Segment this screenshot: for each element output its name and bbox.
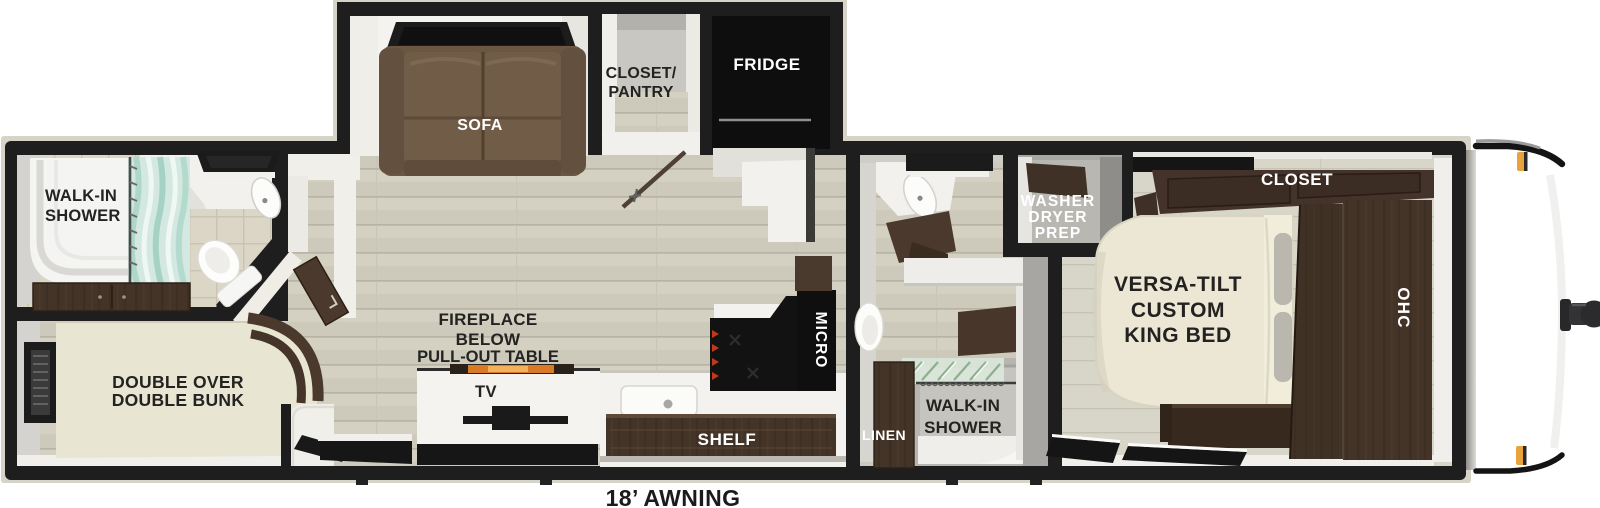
svg-text:FIREPLACE: FIREPLACE xyxy=(438,310,537,329)
svg-text:FRIDGE: FRIDGE xyxy=(733,55,800,74)
svg-text:DRYER: DRYER xyxy=(1028,209,1087,226)
svg-text:DOUBLE BUNK: DOUBLE BUNK xyxy=(112,390,245,410)
svg-text:BELOW: BELOW xyxy=(456,330,521,349)
svg-text:DOUBLE OVER: DOUBLE OVER xyxy=(112,372,244,392)
svg-text:WALK-IN: WALK-IN xyxy=(926,396,1000,415)
svg-text:SHELF: SHELF xyxy=(698,430,757,449)
svg-text:VERSA-TILT: VERSA-TILT xyxy=(1114,273,1242,296)
svg-text:OHC: OHC xyxy=(1394,287,1413,328)
svg-text:CLOSET/: CLOSET/ xyxy=(606,65,677,82)
svg-text:SHOWER: SHOWER xyxy=(45,207,120,225)
svg-text:WASHER: WASHER xyxy=(1021,193,1096,210)
svg-text:KING BED: KING BED xyxy=(1124,324,1231,347)
svg-text:PREP: PREP xyxy=(1035,225,1082,242)
svg-text:TV: TV xyxy=(475,383,497,401)
svg-text:CUSTOM: CUSTOM xyxy=(1131,299,1225,322)
svg-text:SOFA: SOFA xyxy=(457,117,503,134)
svg-text:18’ AWNING: 18’ AWNING xyxy=(606,485,741,508)
svg-text:CLOSET: CLOSET xyxy=(1261,170,1333,189)
svg-text:WALK-IN: WALK-IN xyxy=(45,187,117,205)
svg-text:MICRO: MICRO xyxy=(812,312,829,369)
svg-text:PANTRY: PANTRY xyxy=(608,84,673,101)
svg-text:SHOWER: SHOWER xyxy=(924,418,1002,437)
svg-text:PULL-OUT TABLE: PULL-OUT TABLE xyxy=(417,348,559,366)
svg-text:LINEN: LINEN xyxy=(862,427,906,443)
